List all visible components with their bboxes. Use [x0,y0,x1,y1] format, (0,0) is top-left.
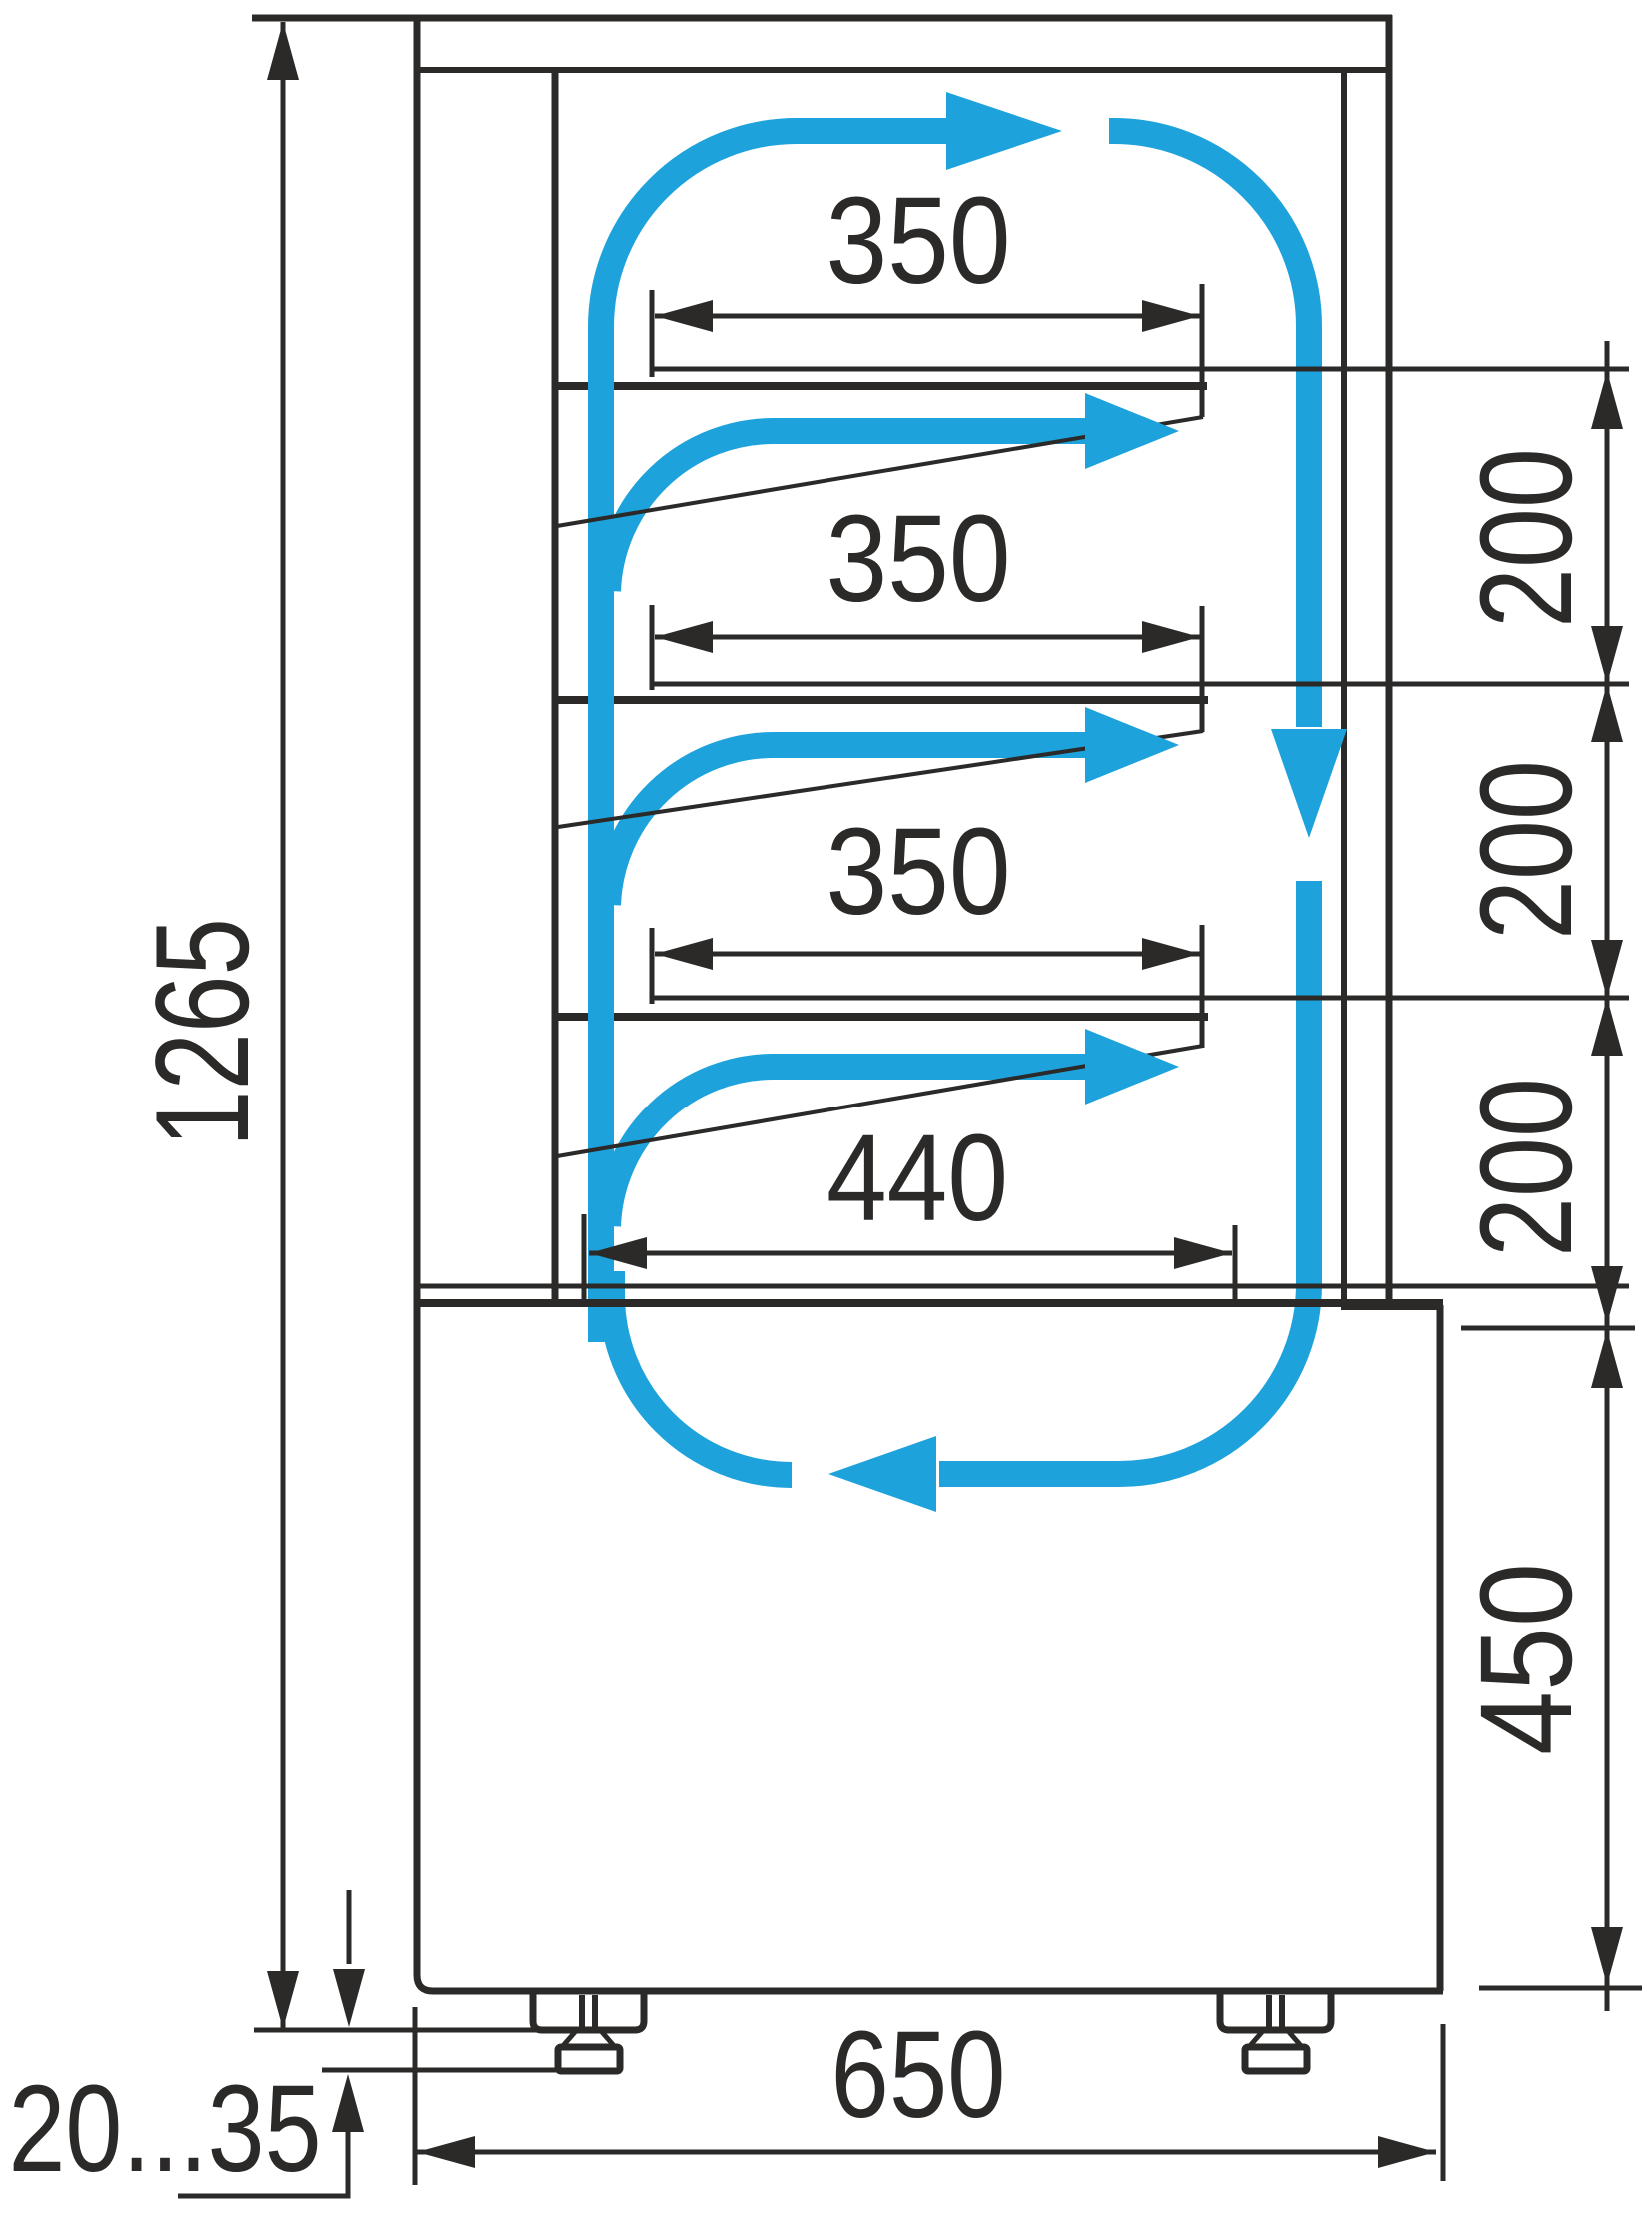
svg-text:650: 650 [831,2007,1006,2144]
svg-text:350: 350 [826,804,1011,941]
svg-text:450: 450 [1452,1563,1599,1755]
svg-text:200: 200 [1452,448,1599,628]
svg-text:20...35: 20...35 [9,2061,322,2198]
svg-text:200: 200 [1452,760,1599,940]
svg-text:1265: 1265 [129,918,277,1147]
svg-text:200: 200 [1452,1078,1599,1257]
svg-text:350: 350 [826,173,1011,310]
svg-text:440: 440 [826,1110,1008,1247]
svg-text:350: 350 [826,491,1011,628]
